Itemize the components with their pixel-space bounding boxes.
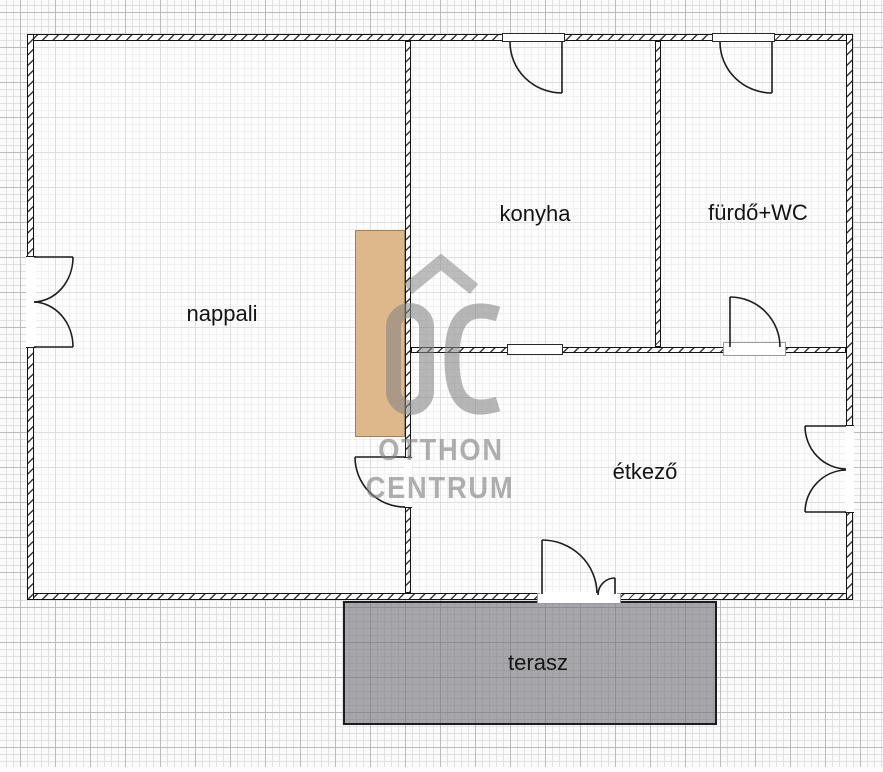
window-opening-right: [845, 425, 854, 513]
exterior-wall-right: [846, 34, 853, 600]
door-opening-terrace: [540, 592, 617, 601]
terrace-label: terasz: [508, 650, 568, 676]
room-label-konyha: konyha: [500, 201, 571, 227]
wardrobe-furniture: [355, 230, 405, 437]
room-label-furdo-wc: fürdő+WC: [708, 200, 808, 226]
door-opening-furdo-etkezo: [727, 345, 783, 355]
interior-wall-nappali-divider: [405, 41, 411, 593]
room-label-etkezo: étkező: [613, 459, 678, 485]
door-opening-nappali-etkezo: [404, 457, 412, 508]
passage-konyha-etkezo: [507, 344, 563, 355]
interior-wall-konyha-furdo: [655, 41, 661, 347]
floorplan-canvas: OTTHON CENTRUM nappali konyha fürdő+WC é…: [0, 0, 883, 767]
exterior-wall-bottom: [27, 593, 853, 600]
door-opening-konyha-entry: [502, 33, 565, 42]
room-area-konyha: [411, 41, 655, 347]
room-area-furdo-wc: [661, 41, 846, 347]
window-opening-left: [26, 256, 36, 348]
room-label-nappali: nappali: [187, 301, 258, 327]
door-opening-furdo-entry: [712, 33, 775, 42]
